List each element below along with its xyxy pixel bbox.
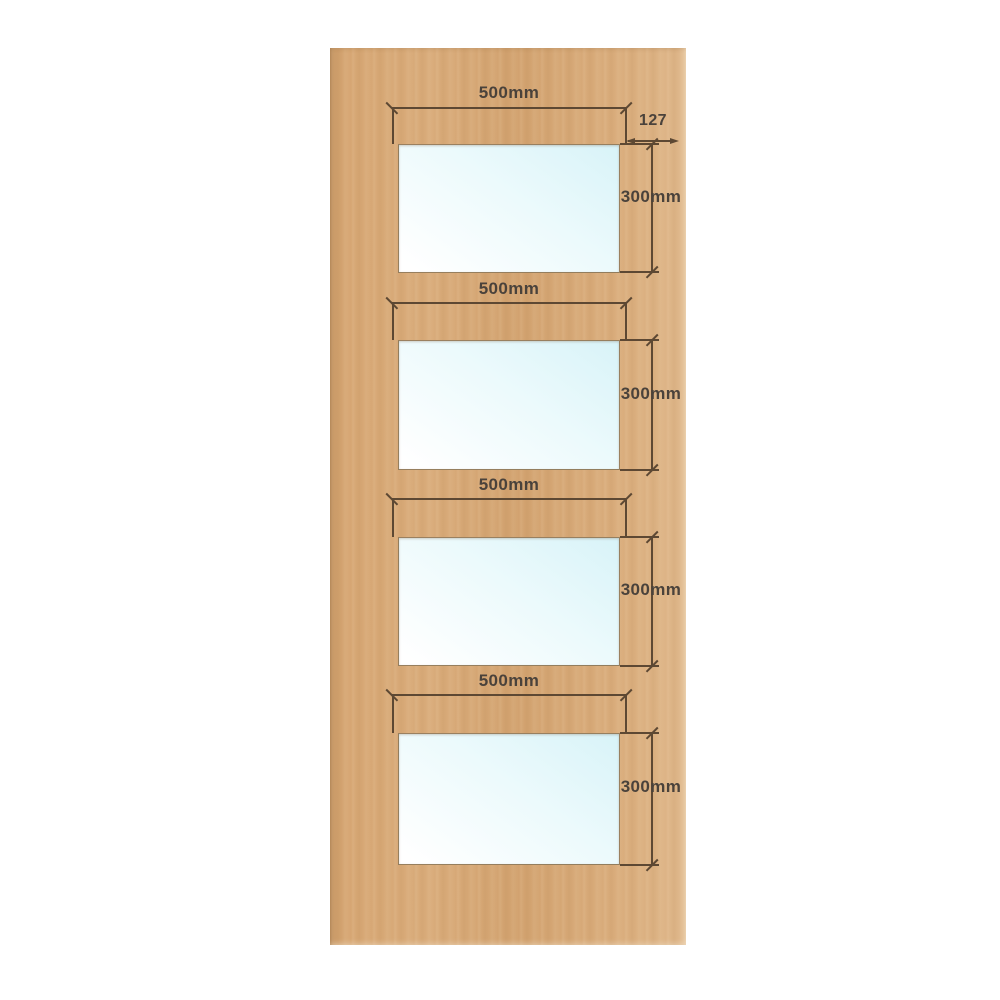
dimension-line — [392, 107, 626, 109]
extension-line — [625, 303, 627, 340]
dimension-arrow-left — [626, 138, 635, 144]
dimension-line — [392, 302, 626, 304]
glass-panel-3 — [398, 537, 620, 666]
dimension-line — [392, 694, 626, 696]
dimension-line — [651, 144, 653, 272]
dimension-line — [628, 140, 676, 142]
extension-line — [392, 695, 394, 733]
width-dimension-label: 500mm — [479, 475, 540, 495]
dimension-arrow-right — [670, 138, 679, 144]
height-dimension-label: 300mm — [621, 580, 682, 600]
extension-line — [392, 499, 394, 537]
diagram-canvas: 500mm 300mm 127 500mm 300mm 500mm 300mm … — [0, 0, 1000, 1000]
dimension-line — [651, 537, 653, 666]
glass-panel-2 — [398, 340, 620, 470]
edge-dimension-label: 127 — [639, 112, 667, 130]
dimension-line — [651, 340, 653, 470]
extension-line — [625, 499, 627, 537]
height-dimension-label: 300mm — [621, 384, 682, 404]
dimension-line — [651, 733, 653, 865]
width-dimension-label: 500mm — [479, 83, 540, 103]
extension-line — [392, 303, 394, 340]
dimension-line — [392, 498, 626, 500]
width-dimension-label: 500mm — [479, 671, 540, 691]
glass-panel-1 — [398, 144, 620, 273]
extension-line — [392, 108, 394, 144]
width-dimension-label: 500mm — [479, 279, 540, 299]
height-dimension-label: 300mm — [621, 187, 682, 207]
height-dimension-label: 300mm — [621, 777, 682, 797]
extension-line — [625, 695, 627, 733]
glass-panel-4 — [398, 733, 620, 865]
